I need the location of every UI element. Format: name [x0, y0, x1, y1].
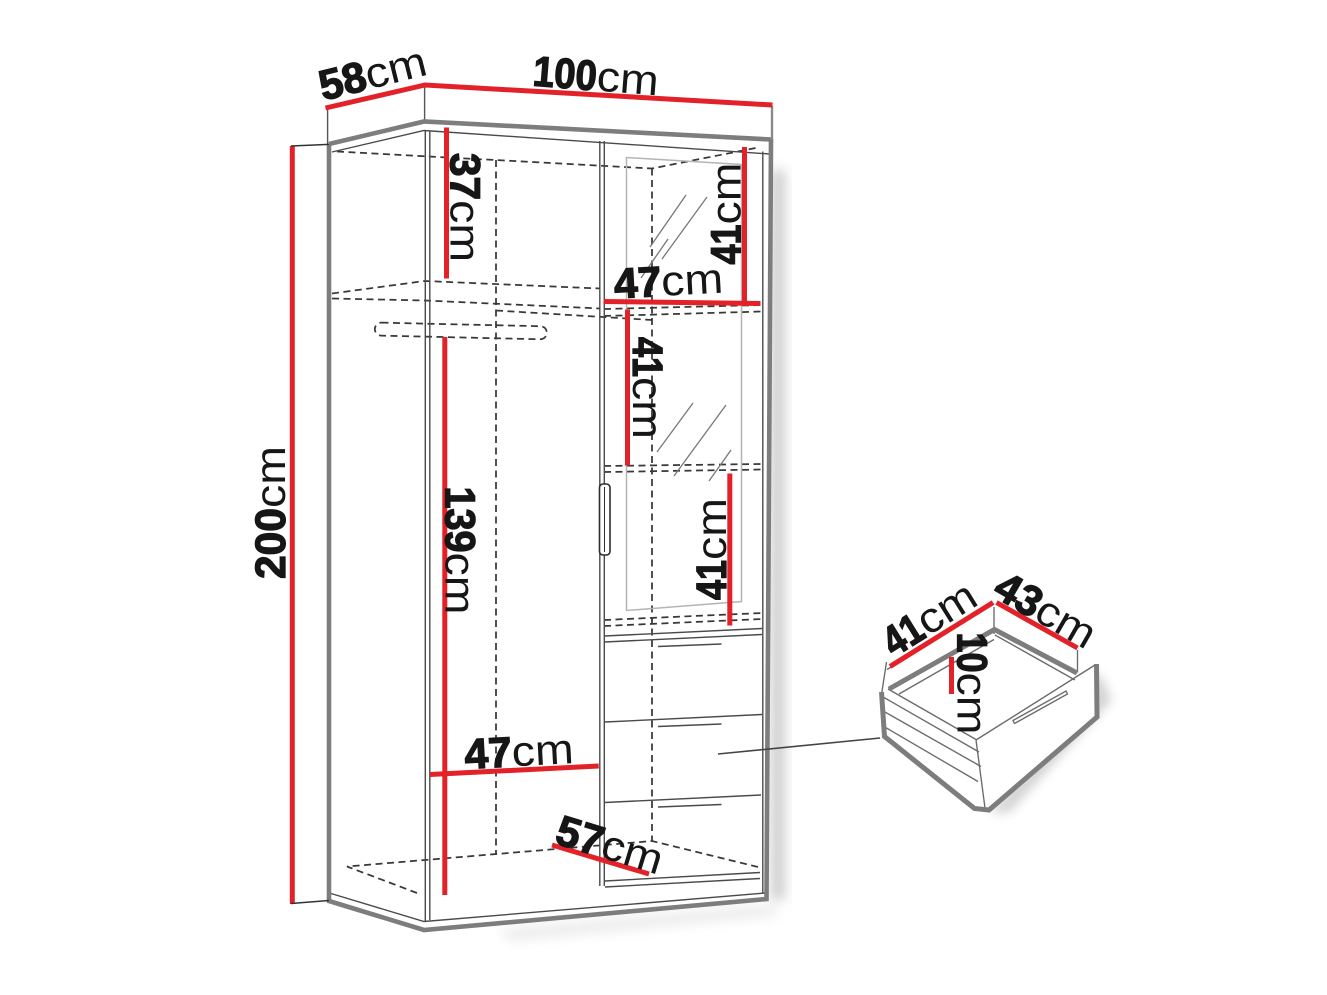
- svg-text:200cm: 200cm: [248, 446, 295, 579]
- svg-text:41cm: 41cm: [704, 163, 751, 265]
- svg-text:139cm: 139cm: [436, 487, 483, 615]
- svg-text:47cm: 47cm: [463, 726, 575, 779]
- svg-text:100cm: 100cm: [531, 49, 660, 106]
- svg-text:37cm: 37cm: [441, 153, 488, 262]
- svg-text:10cm: 10cm: [948, 633, 995, 735]
- svg-text:41cm: 41cm: [623, 337, 670, 439]
- svg-text:47cm: 47cm: [613, 256, 725, 309]
- svg-text:41cm: 41cm: [689, 498, 736, 600]
